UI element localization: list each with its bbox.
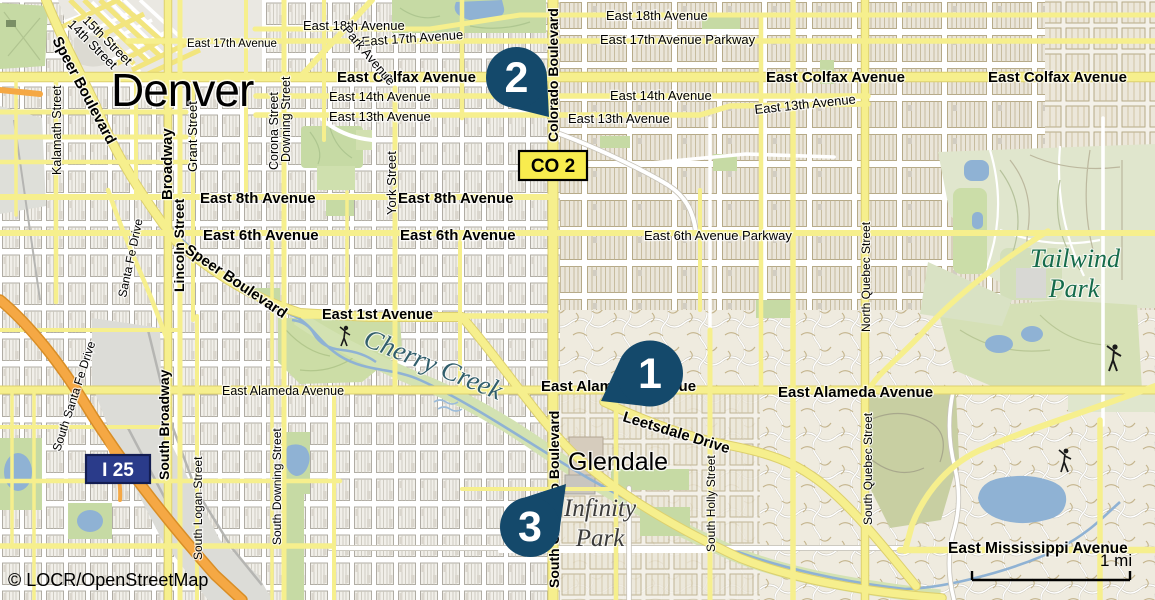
- svg-text:East Alameda Avenue: East Alameda Avenue: [222, 384, 344, 398]
- svg-text:CO 2: CO 2: [531, 156, 575, 177]
- svg-text:East Colfax Avenue: East Colfax Avenue: [766, 69, 905, 86]
- svg-text:North Quebec Street: North Quebec Street: [859, 221, 873, 332]
- svg-text:Tailwind: Tailwind: [1030, 244, 1121, 273]
- svg-text:Infinity: Infinity: [563, 495, 637, 522]
- svg-text:South Logan Street: South Logan Street: [191, 456, 205, 560]
- svg-text:East 17th Avenue Parkway: East 17th Avenue Parkway: [600, 32, 756, 47]
- svg-text:1 mi: 1 mi: [1100, 551, 1132, 570]
- svg-text:Glendale: Glendale: [568, 448, 668, 476]
- svg-text:2: 2: [505, 54, 529, 102]
- svg-text:Grant Street: Grant Street: [185, 101, 200, 172]
- svg-text:York Street: York Street: [384, 151, 399, 215]
- svg-text:East 18th Avenue: East 18th Avenue: [606, 8, 708, 23]
- svg-text:Denver: Denver: [111, 64, 254, 116]
- svg-text:East 6th Avenue: East 6th Avenue: [400, 227, 516, 244]
- svg-text:I 25: I 25: [102, 460, 134, 481]
- svg-text:South Quebec Street: South Quebec Street: [861, 412, 875, 525]
- svg-text:South Broadway: South Broadway: [156, 369, 172, 480]
- svg-text:Park: Park: [575, 525, 626, 552]
- svg-text:East 6th Avenue: East 6th Avenue: [203, 227, 319, 244]
- svg-text:South Holly Street: South Holly Street: [704, 455, 718, 552]
- svg-text:East Colfax Avenue: East Colfax Avenue: [337, 69, 476, 86]
- svg-text:3: 3: [518, 503, 542, 551]
- svg-text:East 8th Avenue: East 8th Avenue: [398, 190, 514, 207]
- svg-text:East 8th Avenue: East 8th Avenue: [200, 190, 316, 207]
- svg-text:Lincoln Street: Lincoln Street: [171, 198, 187, 292]
- svg-text:East 1st Avenue: East 1st Avenue: [322, 307, 433, 323]
- svg-text:Colorado Boulevard: Colorado Boulevard: [545, 8, 561, 142]
- svg-text:Broadway: Broadway: [159, 128, 176, 200]
- svg-text:East 6th Avenue Parkway: East 6th Avenue Parkway: [644, 228, 792, 243]
- svg-text:Kalamath Street: Kalamath Street: [50, 85, 64, 175]
- svg-text:Park: Park: [1048, 274, 1100, 303]
- svg-text:East 13th Avenue: East 13th Avenue: [329, 109, 431, 124]
- svg-text:Downing Street: Downing Street: [279, 76, 293, 162]
- svg-text:© LOCR/OpenStreetMap: © LOCR/OpenStreetMap: [8, 570, 208, 590]
- svg-text:1: 1: [638, 350, 662, 398]
- svg-text:East 13th Avenue: East 13th Avenue: [568, 111, 670, 126]
- svg-text:East Alameda Avenue: East Alameda Avenue: [778, 384, 933, 401]
- svg-text:East 17th Avenue: East 17th Avenue: [187, 38, 277, 50]
- svg-text:East 14th Avenue: East 14th Avenue: [610, 88, 712, 103]
- svg-text:East Colfax Avenue: East Colfax Avenue: [988, 69, 1127, 86]
- svg-text:East 14th Avenue: East 14th Avenue: [329, 89, 431, 104]
- svg-text:South Downing Street: South Downing Street: [270, 428, 284, 545]
